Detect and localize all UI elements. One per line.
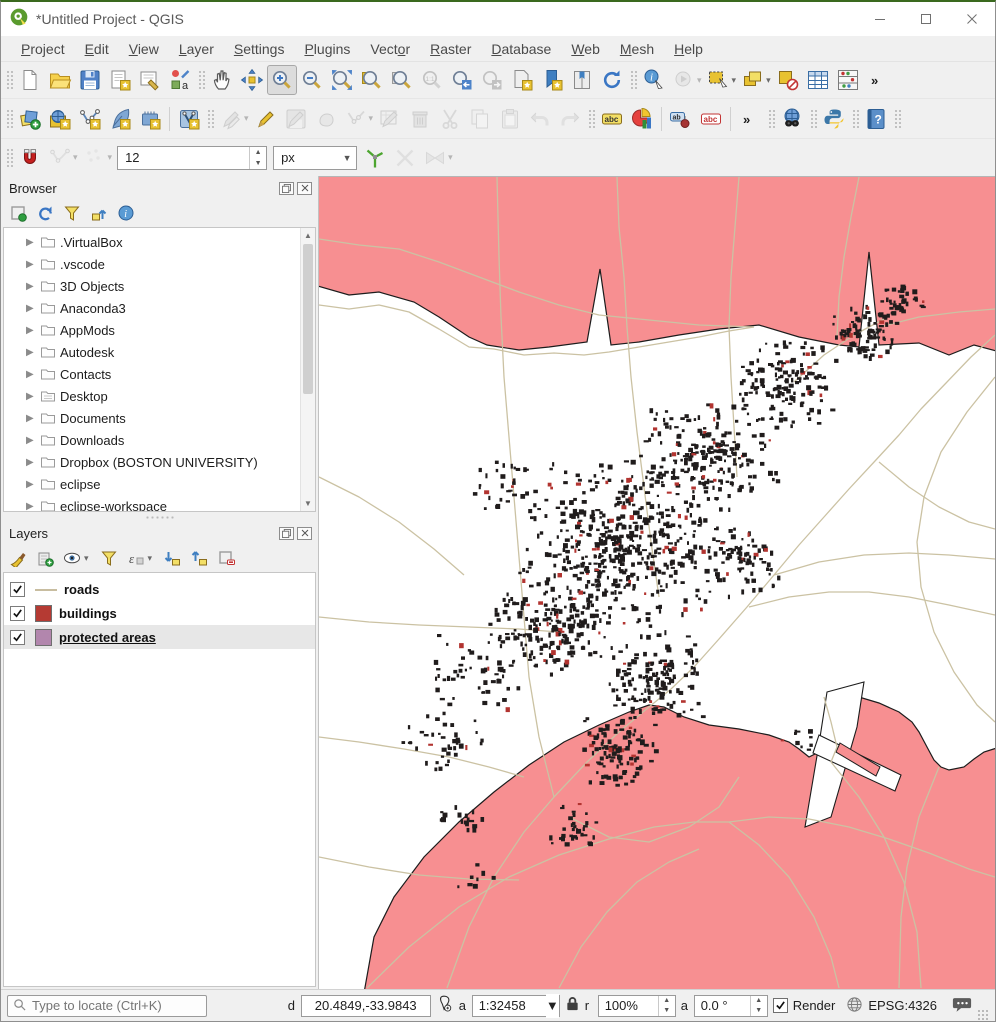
browser-item-label: Contacts <box>60 367 111 382</box>
toolbar-separator <box>169 107 170 131</box>
menu-bar: ProjectEditViewLayerSettingsPluginsVecto… <box>1 36 995 62</box>
add-group-button[interactable] <box>36 549 54 567</box>
expand-arrow-icon[interactable]: ▶ <box>26 259 40 270</box>
svg-text:1:1: 1:1 <box>426 76 435 83</box>
menu-edit[interactable]: Edit <box>75 38 119 60</box>
topological-editing-button[interactable] <box>360 143 390 173</box>
filter-browser-button[interactable] <box>63 204 81 222</box>
folder-icon <box>40 410 60 426</box>
zoom-full-button[interactable] <box>327 65 357 95</box>
folder-icon <box>40 278 60 294</box>
new-print-layout-button[interactable] <box>105 65 135 95</box>
browser-item-label: Documents <box>60 411 126 426</box>
select-by-value-button[interactable] <box>738 65 768 95</box>
help-contents-button[interactable]: ? <box>861 104 891 134</box>
manage-map-themes-dropdown-arrow[interactable]: ▾ <box>84 553 89 564</box>
lock-scale-icon[interactable] <box>565 996 580 1015</box>
render-checkbox[interactable] <box>773 998 788 1013</box>
browser-panel-title: Browser <box>9 181 276 196</box>
modify-attributes-button <box>375 104 405 134</box>
new-map-view-button[interactable] <box>507 65 537 95</box>
browser-item-3d-objects[interactable]: ▶3D Objects <box>4 275 315 297</box>
scroll-down-arrow[interactable]: ▼ <box>301 496 315 511</box>
folder-icon <box>40 300 60 316</box>
layers-panel: Layers ▾ε▾ roadsbuildingsprotected areas <box>1 521 318 989</box>
statistical-summary-button[interactable] <box>833 65 863 95</box>
resize-grip[interactable] <box>977 1009 989 1021</box>
layer-name: protected areas <box>59 630 156 645</box>
copy-features-button <box>465 104 495 134</box>
scroll-thumb[interactable] <box>303 244 313 394</box>
layer-item-buildings[interactable]: buildings <box>4 601 315 625</box>
menu-view[interactable]: View <box>119 38 169 60</box>
title-bar: *Untitled Project - QGIS <box>1 2 995 36</box>
menu-plugins[interactable]: Plugins <box>294 38 360 60</box>
toolbar-digitizing: ▾▾abcababc»? <box>1 98 995 138</box>
browser-scrollbar[interactable]: ▲ ▼ <box>300 228 315 511</box>
run-feature-action-button <box>669 65 699 95</box>
zoom-out-button[interactable] <box>297 65 327 95</box>
toggle-editing-button[interactable] <box>251 104 281 134</box>
select-features-button[interactable] <box>704 65 734 95</box>
folder-icon <box>40 234 60 250</box>
layers-panel-title: Layers <box>9 526 276 541</box>
snap-on-intersection-button <box>390 143 420 173</box>
browser-item-desktop[interactable]: ▶Desktop <box>4 385 315 407</box>
menu-mesh[interactable]: Mesh <box>610 38 664 60</box>
vertex-tool-button <box>341 104 371 134</box>
toolbar-grip[interactable] <box>206 108 214 130</box>
browser-item-documents[interactable]: ▶Documents <box>4 407 315 429</box>
expand-arrow-icon[interactable]: ▶ <box>26 325 40 336</box>
map-canvas[interactable] <box>319 176 995 989</box>
current-edits-button <box>216 104 246 134</box>
browser-item-contacts[interactable]: ▶Contacts <box>4 363 315 385</box>
data-source-manager-button[interactable] <box>15 104 45 134</box>
layers-float-button[interactable] <box>279 527 294 540</box>
new-virtual-layer-button[interactable] <box>135 104 165 134</box>
toolbar-grip[interactable] <box>809 108 817 130</box>
menu-database[interactable]: Database <box>481 38 561 60</box>
scroll-up-arrow[interactable]: ▲ <box>301 228 315 243</box>
toolbar-grip[interactable] <box>5 69 13 91</box>
add-feature-button <box>311 104 341 134</box>
svg-text:ε: ε <box>129 551 135 566</box>
rotation-label: a <box>681 998 689 1013</box>
menu-raster[interactable]: Raster <box>420 38 481 60</box>
qgis-window: *Untitled Project - QGIS ProjectEditView… <box>0 0 996 1022</box>
save-layer-edits-button <box>281 104 311 134</box>
layer-item-roads[interactable]: roads <box>4 577 315 601</box>
browser-item-label: .vscode <box>60 257 105 272</box>
toolbar-separator <box>730 107 731 131</box>
avoid-overlap-button <box>420 143 450 173</box>
browser-item-autodesk[interactable]: ▶Autodesk <box>4 341 315 363</box>
expand-arrow-icon[interactable]: ▶ <box>26 303 40 314</box>
browser-item-label: eclipse <box>60 477 100 492</box>
metasearch-button[interactable] <box>777 104 807 134</box>
layer-name: buildings <box>59 606 117 621</box>
delete-selected-button <box>405 104 435 134</box>
browser-item-label: Autodesk <box>60 345 114 360</box>
layer-styling-button[interactable] <box>627 104 657 134</box>
desktop-folder-icon <box>40 388 60 404</box>
toolbar-grip[interactable] <box>767 108 775 130</box>
layer-symbol-line <box>35 589 57 591</box>
scale-dropdown-arrow[interactable]: ▼ <box>546 994 559 1018</box>
browser-item-appmods[interactable]: ▶AppMods <box>4 319 315 341</box>
browser-item-eclipse-workspace[interactable]: ▶eclipse-workspace <box>4 495 315 512</box>
locator-input[interactable] <box>30 997 201 1014</box>
minimize-button[interactable] <box>857 2 903 36</box>
expand-arrow-icon[interactable]: ▶ <box>26 347 40 358</box>
layer-visibility-checkbox[interactable] <box>10 630 25 645</box>
browser-close-button[interactable] <box>297 182 312 195</box>
svg-text:i: i <box>124 209 127 220</box>
toolbar-overflow-button[interactable]: » <box>735 104 765 134</box>
folder-icon <box>40 344 60 360</box>
save-project-button[interactable] <box>75 65 105 95</box>
new-mesh-layer-button[interactable] <box>174 104 204 134</box>
show-bookmarks-button[interactable] <box>567 65 597 95</box>
scale-combo[interactable]: 1:32458 ▼ <box>472 995 560 1017</box>
browser-item-label: Anaconda3 <box>60 301 126 316</box>
close-button[interactable] <box>949 2 995 36</box>
coordinate-label: d <box>288 998 296 1013</box>
menu-vector[interactable]: Vector <box>360 38 420 60</box>
zoom-last-button[interactable] <box>447 65 477 95</box>
collapse-all-browser-button[interactable] <box>90 204 108 222</box>
expand-all-button[interactable] <box>163 549 181 567</box>
expand-arrow-icon[interactable]: ▶ <box>26 457 40 468</box>
magnifier-label: r <box>585 998 593 1013</box>
layer-item-protected-areas[interactable]: protected areas <box>4 625 315 649</box>
maximize-button[interactable] <box>903 2 949 36</box>
rotation-spin[interactable]: 0.0 ° ▲▼ <box>694 995 768 1017</box>
undo-button <box>525 104 555 134</box>
browser-item-label: Downloads <box>60 433 124 448</box>
left-dock-area: Browser i ▶.VirtualBox▶.vscode▶3D Object… <box>1 176 319 989</box>
toolbar-grip[interactable] <box>851 108 859 130</box>
folder-icon <box>40 432 60 448</box>
search-icon <box>13 998 26 1014</box>
layer-symbol-fill <box>35 629 52 646</box>
menu-web[interactable]: Web <box>561 38 610 60</box>
new-spatial-bookmark-button[interactable] <box>537 65 567 95</box>
manage-map-themes-button[interactable] <box>63 549 81 567</box>
toolbar-grip[interactable] <box>197 69 205 91</box>
properties-widget-button[interactable]: i <box>117 204 135 222</box>
toolbar-grip[interactable] <box>5 147 13 169</box>
expand-arrow-icon[interactable]: ▶ <box>26 237 40 248</box>
svg-text:abc: abc <box>605 114 619 123</box>
open-project-button[interactable] <box>45 65 75 95</box>
refresh-map-button[interactable] <box>597 65 627 95</box>
browser-item--vscode[interactable]: ▶.vscode <box>4 253 315 275</box>
svg-text:?: ? <box>875 112 882 126</box>
new-shapefile-layer-button[interactable] <box>75 104 105 134</box>
toggle-extents-icon[interactable] <box>436 995 454 1016</box>
snapping-units[interactable]: px▼ <box>273 146 357 170</box>
browser-item-downloads[interactable]: ▶Downloads <box>4 429 315 451</box>
expand-arrow-icon[interactable]: ▶ <box>26 479 40 490</box>
highlight-labels-button[interactable]: abc <box>696 104 726 134</box>
snapping-options-button <box>45 143 75 173</box>
folder-icon <box>40 454 60 470</box>
pan-to-selection-button[interactable] <box>237 65 267 95</box>
filter-by-expression-dropdown-arrow[interactable]: ▾ <box>148 553 153 564</box>
folder-icon <box>40 322 60 338</box>
svg-text:ab: ab <box>673 114 681 121</box>
enable-snapping-button[interactable] <box>15 143 45 173</box>
folder-icon <box>40 476 60 492</box>
scale-label: a <box>459 998 467 1013</box>
layer-visibility-checkbox[interactable] <box>10 582 25 597</box>
expand-arrow-icon[interactable]: ▶ <box>26 413 40 424</box>
remove-layer-button[interactable] <box>217 549 235 567</box>
folder-icon <box>40 498 60 512</box>
zoom-to-layer-button[interactable] <box>387 65 417 95</box>
new-project-button[interactable] <box>15 65 45 95</box>
redo-button <box>555 104 585 134</box>
layer-labeling-button[interactable]: abc <box>597 104 627 134</box>
coordinate-box[interactable]: 20.4849,-33.9843 <box>301 995 431 1017</box>
magnifier-spin[interactable]: 100% ▲▼ <box>598 995 676 1017</box>
folder-icon <box>40 366 60 382</box>
browser-float-button[interactable] <box>279 182 294 195</box>
toolbar-grip[interactable] <box>5 108 13 130</box>
refresh-browser-button[interactable] <box>36 204 54 222</box>
svg-text:i: i <box>650 72 653 84</box>
toolbar-grip[interactable] <box>629 69 637 91</box>
deselect-features-button[interactable] <box>773 65 803 95</box>
qgis-logo-icon <box>9 7 29 32</box>
zoom-next-button <box>477 65 507 95</box>
window-title: *Untitled Project - QGIS <box>36 11 857 27</box>
messages-icon[interactable] <box>952 996 972 1016</box>
add-selected-layers-button[interactable] <box>9 204 27 222</box>
menu-layer[interactable]: Layer <box>169 38 224 60</box>
browser-item--virtualbox[interactable]: ▶.VirtualBox <box>4 231 315 253</box>
zoom-to-selection-button[interactable] <box>357 65 387 95</box>
expand-arrow-icon[interactable]: ▶ <box>26 501 40 512</box>
browser-item-dropbox-boston-university-[interactable]: ▶Dropbox (BOSTON UNIVERSITY) <box>4 451 315 473</box>
layer-symbol-fill <box>35 605 52 622</box>
identify-features-button[interactable]: i <box>639 65 669 95</box>
style-manager-button[interactable]: a <box>165 65 195 95</box>
expand-arrow-icon[interactable]: ▶ <box>26 281 40 292</box>
pin-labels-button[interactable]: ab <box>666 104 696 134</box>
browser-item-label: 3D Objects <box>60 279 124 294</box>
toolbar-grip[interactable] <box>587 108 595 130</box>
new-temporary-scratch-layer-button[interactable] <box>105 104 135 134</box>
zoom-in-button[interactable] <box>267 65 297 95</box>
status-bar: d 20.4849,-33.9843 a 1:32458 ▼ r 100% ▲▼… <box>1 989 995 1021</box>
panel-splitter[interactable] <box>1 514 318 521</box>
pan-map-button[interactable] <box>207 65 237 95</box>
crs-label[interactable]: EPSG:4326 <box>868 998 937 1013</box>
paste-features-button <box>495 104 525 134</box>
browser-item-label: .VirtualBox <box>60 235 123 250</box>
browser-item-label: Desktop <box>60 389 108 404</box>
cut-features-button <box>435 104 465 134</box>
layer-visibility-checkbox[interactable] <box>10 606 25 621</box>
svg-text:abc: abc <box>704 114 718 123</box>
snapping-tolerance[interactable]: 12▲▼ <box>117 146 267 170</box>
toolbar-grip[interactable] <box>893 108 901 130</box>
browser-item-anaconda3[interactable]: ▶Anaconda3 <box>4 297 315 319</box>
python-console-button[interactable] <box>819 104 849 134</box>
toolbar-map-navigation: a1:1i▾▾▾» <box>1 62 995 98</box>
show-layout-manager-button[interactable] <box>135 65 165 95</box>
crs-globe-icon[interactable] <box>846 996 863 1016</box>
filter-legend-button[interactable] <box>100 549 118 567</box>
layer-name: roads <box>64 582 99 597</box>
open-attribute-table-button[interactable] <box>803 65 833 95</box>
browser-item-eclipse[interactable]: ▶eclipse <box>4 473 315 495</box>
collapse-all-button[interactable] <box>190 549 208 567</box>
open-layer-styling-button[interactable] <box>9 549 27 567</box>
zoom-native-button: 1:1 <box>417 65 447 95</box>
filter-by-expression-button[interactable]: ε <box>127 549 145 567</box>
toolbar-overflow-button[interactable]: » <box>863 65 893 95</box>
menu-project[interactable]: Project <box>11 38 75 60</box>
svg-text:»: » <box>871 73 878 88</box>
svg-text:»: » <box>743 112 750 127</box>
expand-arrow-icon[interactable]: ▶ <box>26 391 40 402</box>
browser-item-label: eclipse-workspace <box>60 499 167 513</box>
render-label: Render <box>793 998 836 1013</box>
menu-settings[interactable]: Settings <box>224 38 295 60</box>
svg-text:a: a <box>182 80 189 92</box>
browser-item-label: Dropbox (BOSTON UNIVERSITY) <box>60 455 258 470</box>
browser-item-label: AppMods <box>60 323 115 338</box>
browser-panel: Browser i ▶.VirtualBox▶.vscode▶3D Object… <box>1 176 318 514</box>
folder-icon <box>40 256 60 272</box>
new-geopackage-layer-button[interactable] <box>45 104 75 134</box>
layers-close-button[interactable] <box>297 527 312 540</box>
expand-arrow-icon[interactable]: ▶ <box>26 435 40 446</box>
locator-search[interactable] <box>7 995 207 1017</box>
snapping-self-button <box>80 143 110 173</box>
toolbar-snapping: ▾▾12▲▼px▼▾ <box>1 138 995 176</box>
menu-help[interactable]: Help <box>664 38 713 60</box>
toolbar-separator <box>661 107 662 131</box>
expand-arrow-icon[interactable]: ▶ <box>26 369 40 380</box>
